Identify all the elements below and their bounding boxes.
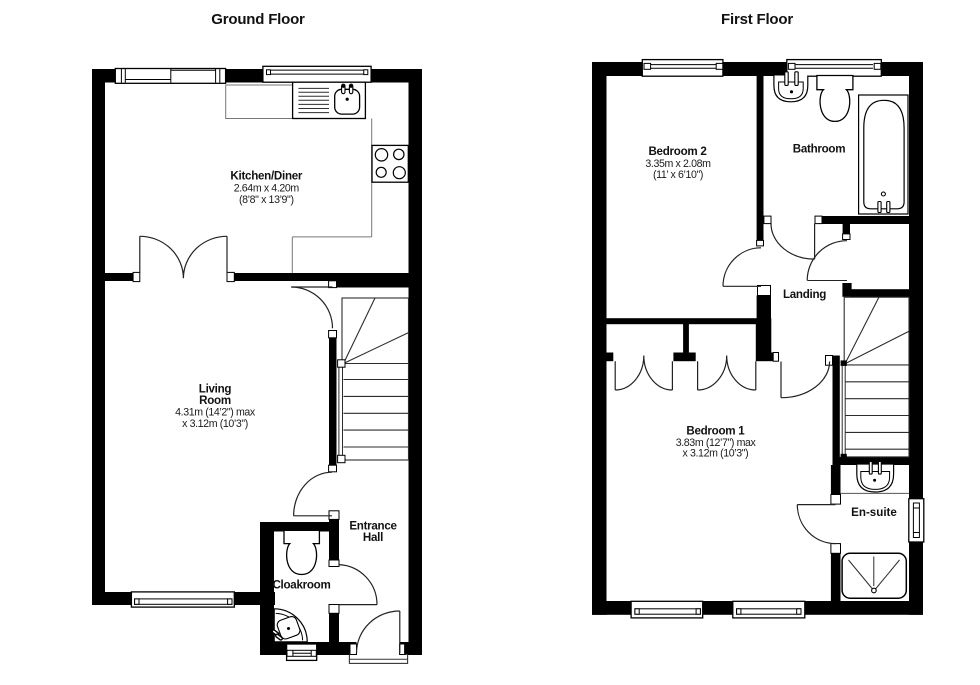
svg-text:Kitchen/Diner: Kitchen/Diner [230, 169, 302, 182]
svg-text:x 3.12m (10’3"): x 3.12m (10’3") [683, 448, 749, 460]
svg-text:Cloakroom: Cloakroom [272, 578, 330, 591]
svg-text:Room: Room [199, 394, 231, 407]
svg-text:(11’ x 6’10"): (11’ x 6’10") [653, 169, 703, 181]
svg-text:Bedroom 2: Bedroom 2 [648, 145, 706, 158]
svg-text:Bedroom 1: Bedroom 1 [686, 425, 745, 438]
svg-text:En-suite: En-suite [851, 506, 897, 519]
svg-text:(8’8" x 13’9"): (8’8" x 13’9") [239, 194, 294, 206]
svg-text:2.64m x 4.20m: 2.64m x 4.20m [234, 183, 300, 195]
svg-text:Hall: Hall [363, 531, 383, 544]
svg-text:Ground Floor: Ground Floor [211, 11, 305, 28]
svg-text:Bathroom: Bathroom [793, 143, 846, 156]
svg-text:x 3.12m (10’3"): x 3.12m (10’3") [182, 418, 248, 430]
svg-text:4.31m (14’2") max: 4.31m (14’2") max [175, 407, 256, 419]
svg-text:Landing: Landing [783, 288, 826, 301]
svg-text:First Floor: First Floor [721, 11, 793, 28]
